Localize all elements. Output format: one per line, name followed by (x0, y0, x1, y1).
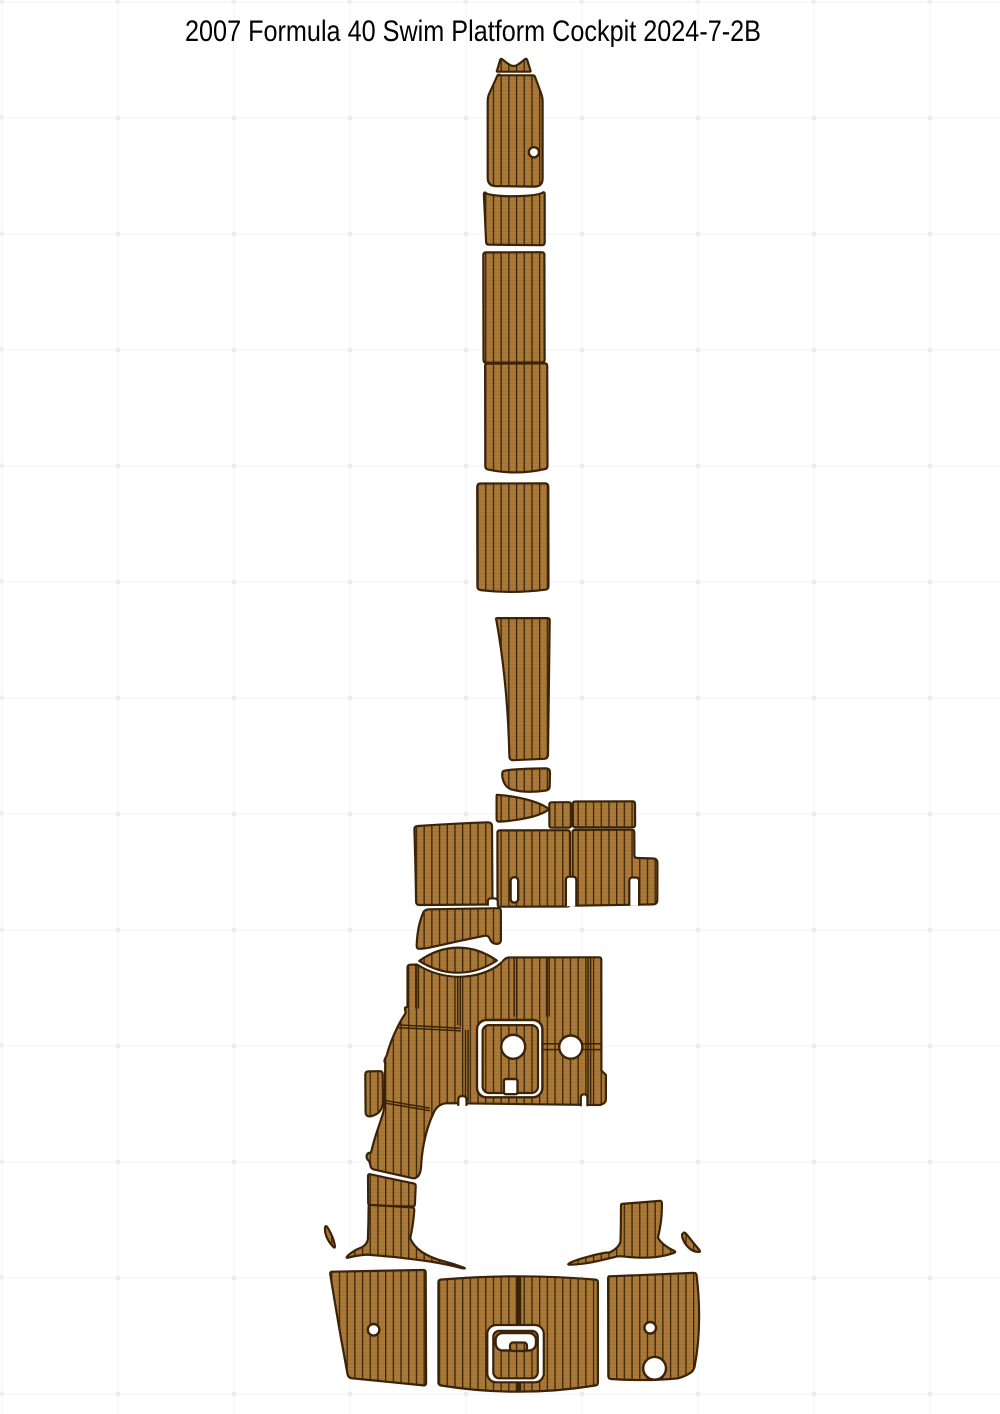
svg-text:2007 Formula 40 Swim Platform: 2007 Formula 40 Swim Platform Cockpit 20… (185, 15, 761, 48)
